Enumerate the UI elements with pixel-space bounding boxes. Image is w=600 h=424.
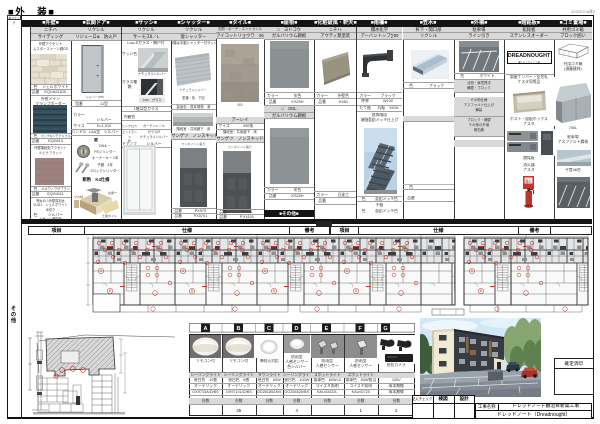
svg-text:玄関冖: 玄関冖 [108, 190, 117, 195]
svg-text:E: E [325, 326, 329, 332]
svg-text:B: B [273, 289, 275, 293]
svg-text:B: B [237, 326, 241, 332]
svg-text:A: A [204, 326, 208, 332]
svg-text:G: G [383, 326, 387, 332]
svg-text:B: B [109, 289, 111, 293]
svg-text:B: B [480, 289, 482, 293]
svg-text:土間タイル: 土間タイル [102, 213, 117, 218]
svg-text:C: C [267, 326, 271, 332]
svg-text:消火: 消火 [525, 179, 532, 184]
svg-text:B: B [355, 289, 357, 293]
svg-text:マカ材: マカ材 [74, 194, 83, 199]
svg-text:D: D [295, 326, 299, 332]
svg-text:B: B [191, 289, 193, 293]
